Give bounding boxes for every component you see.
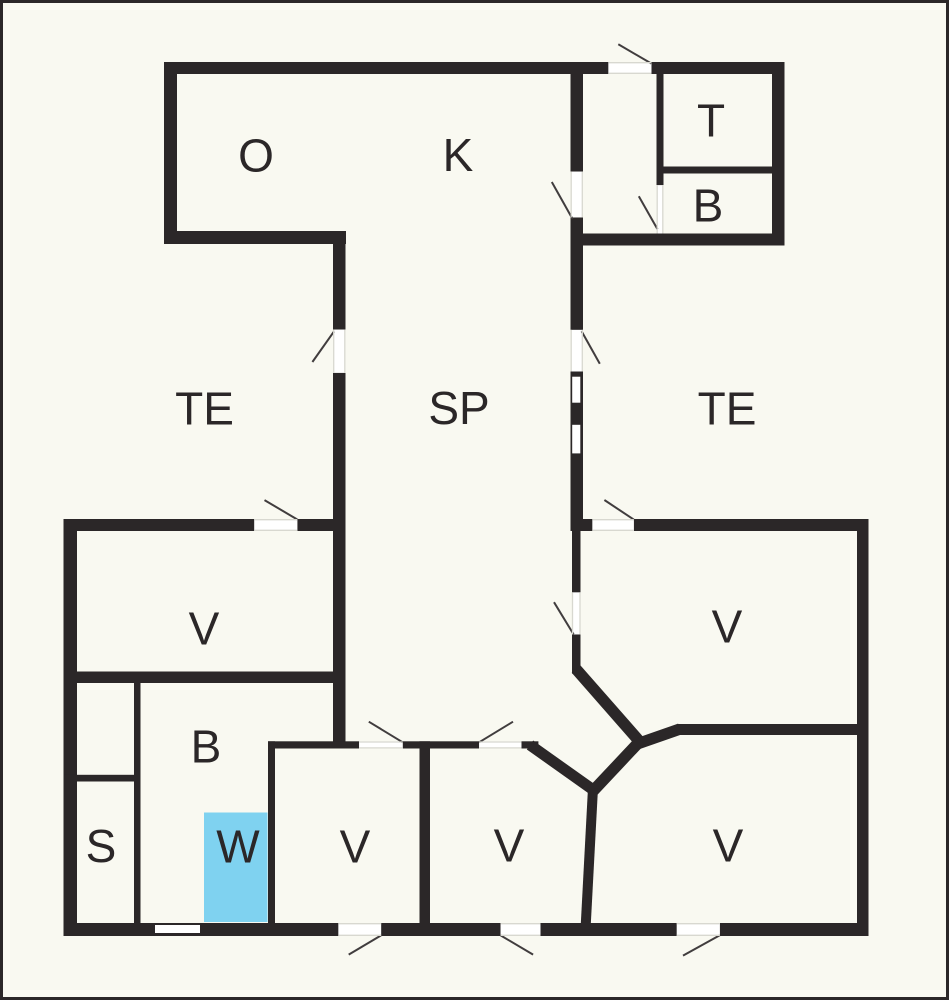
svg-text:V: V bbox=[494, 820, 525, 872]
svg-text:V: V bbox=[712, 601, 743, 653]
svg-text:T: T bbox=[697, 95, 725, 147]
svg-text:B: B bbox=[693, 180, 724, 232]
svg-text:B: B bbox=[191, 721, 222, 773]
svg-text:W: W bbox=[216, 821, 260, 873]
svg-text:TE: TE bbox=[698, 383, 757, 435]
svg-text:K: K bbox=[443, 129, 474, 181]
svg-text:V: V bbox=[713, 820, 744, 872]
svg-text:TE: TE bbox=[175, 383, 234, 435]
svg-text:SP: SP bbox=[428, 382, 489, 434]
svg-text:V: V bbox=[189, 603, 220, 655]
svg-text:O: O bbox=[238, 130, 274, 182]
svg-text:V: V bbox=[340, 821, 371, 873]
svg-text:S: S bbox=[86, 820, 117, 872]
